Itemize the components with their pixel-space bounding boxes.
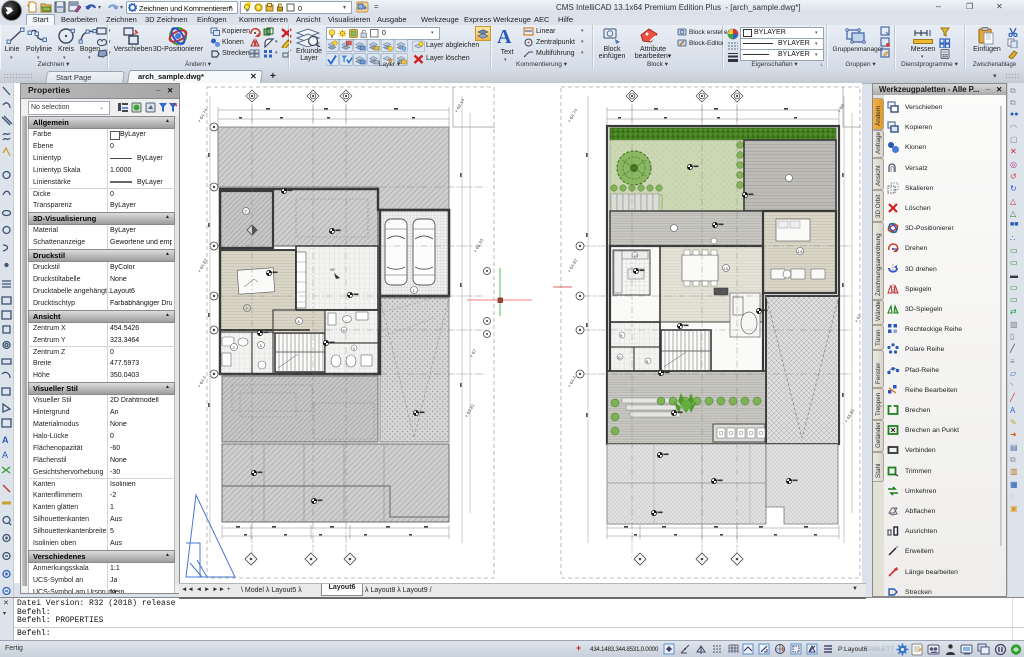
svg-text:+ 64.4: + 64.4: [567, 375, 578, 389]
svg-text:+ 65.33: + 65.33: [473, 237, 485, 253]
svg-text:A: A: [2, 450, 8, 460]
svg-text:+ 64.82: + 64.82: [197, 257, 209, 273]
svg-text:13: 13: [724, 266, 729, 271]
svg-text:10: 10: [617, 355, 622, 360]
svg-text:+ 63.81: + 63.81: [464, 402, 476, 418]
svg-text:A: A: [2, 435, 9, 445]
svg-text:+ 64.4: + 64.4: [197, 375, 208, 389]
svg-text:13: 13: [633, 253, 638, 258]
svg-text:+ 64.82: + 64.82: [567, 257, 579, 273]
svg-text:+ 67: + 67: [854, 313, 862, 324]
svg-text:WF: WF: [330, 268, 335, 272]
svg-text:+ 64.74: + 64.74: [567, 107, 579, 123]
svg-text:+ 65.81: + 65.81: [844, 407, 856, 423]
svg-text:+ 69.14: + 69.14: [454, 97, 466, 113]
svg-text:14: 14: [798, 249, 803, 254]
